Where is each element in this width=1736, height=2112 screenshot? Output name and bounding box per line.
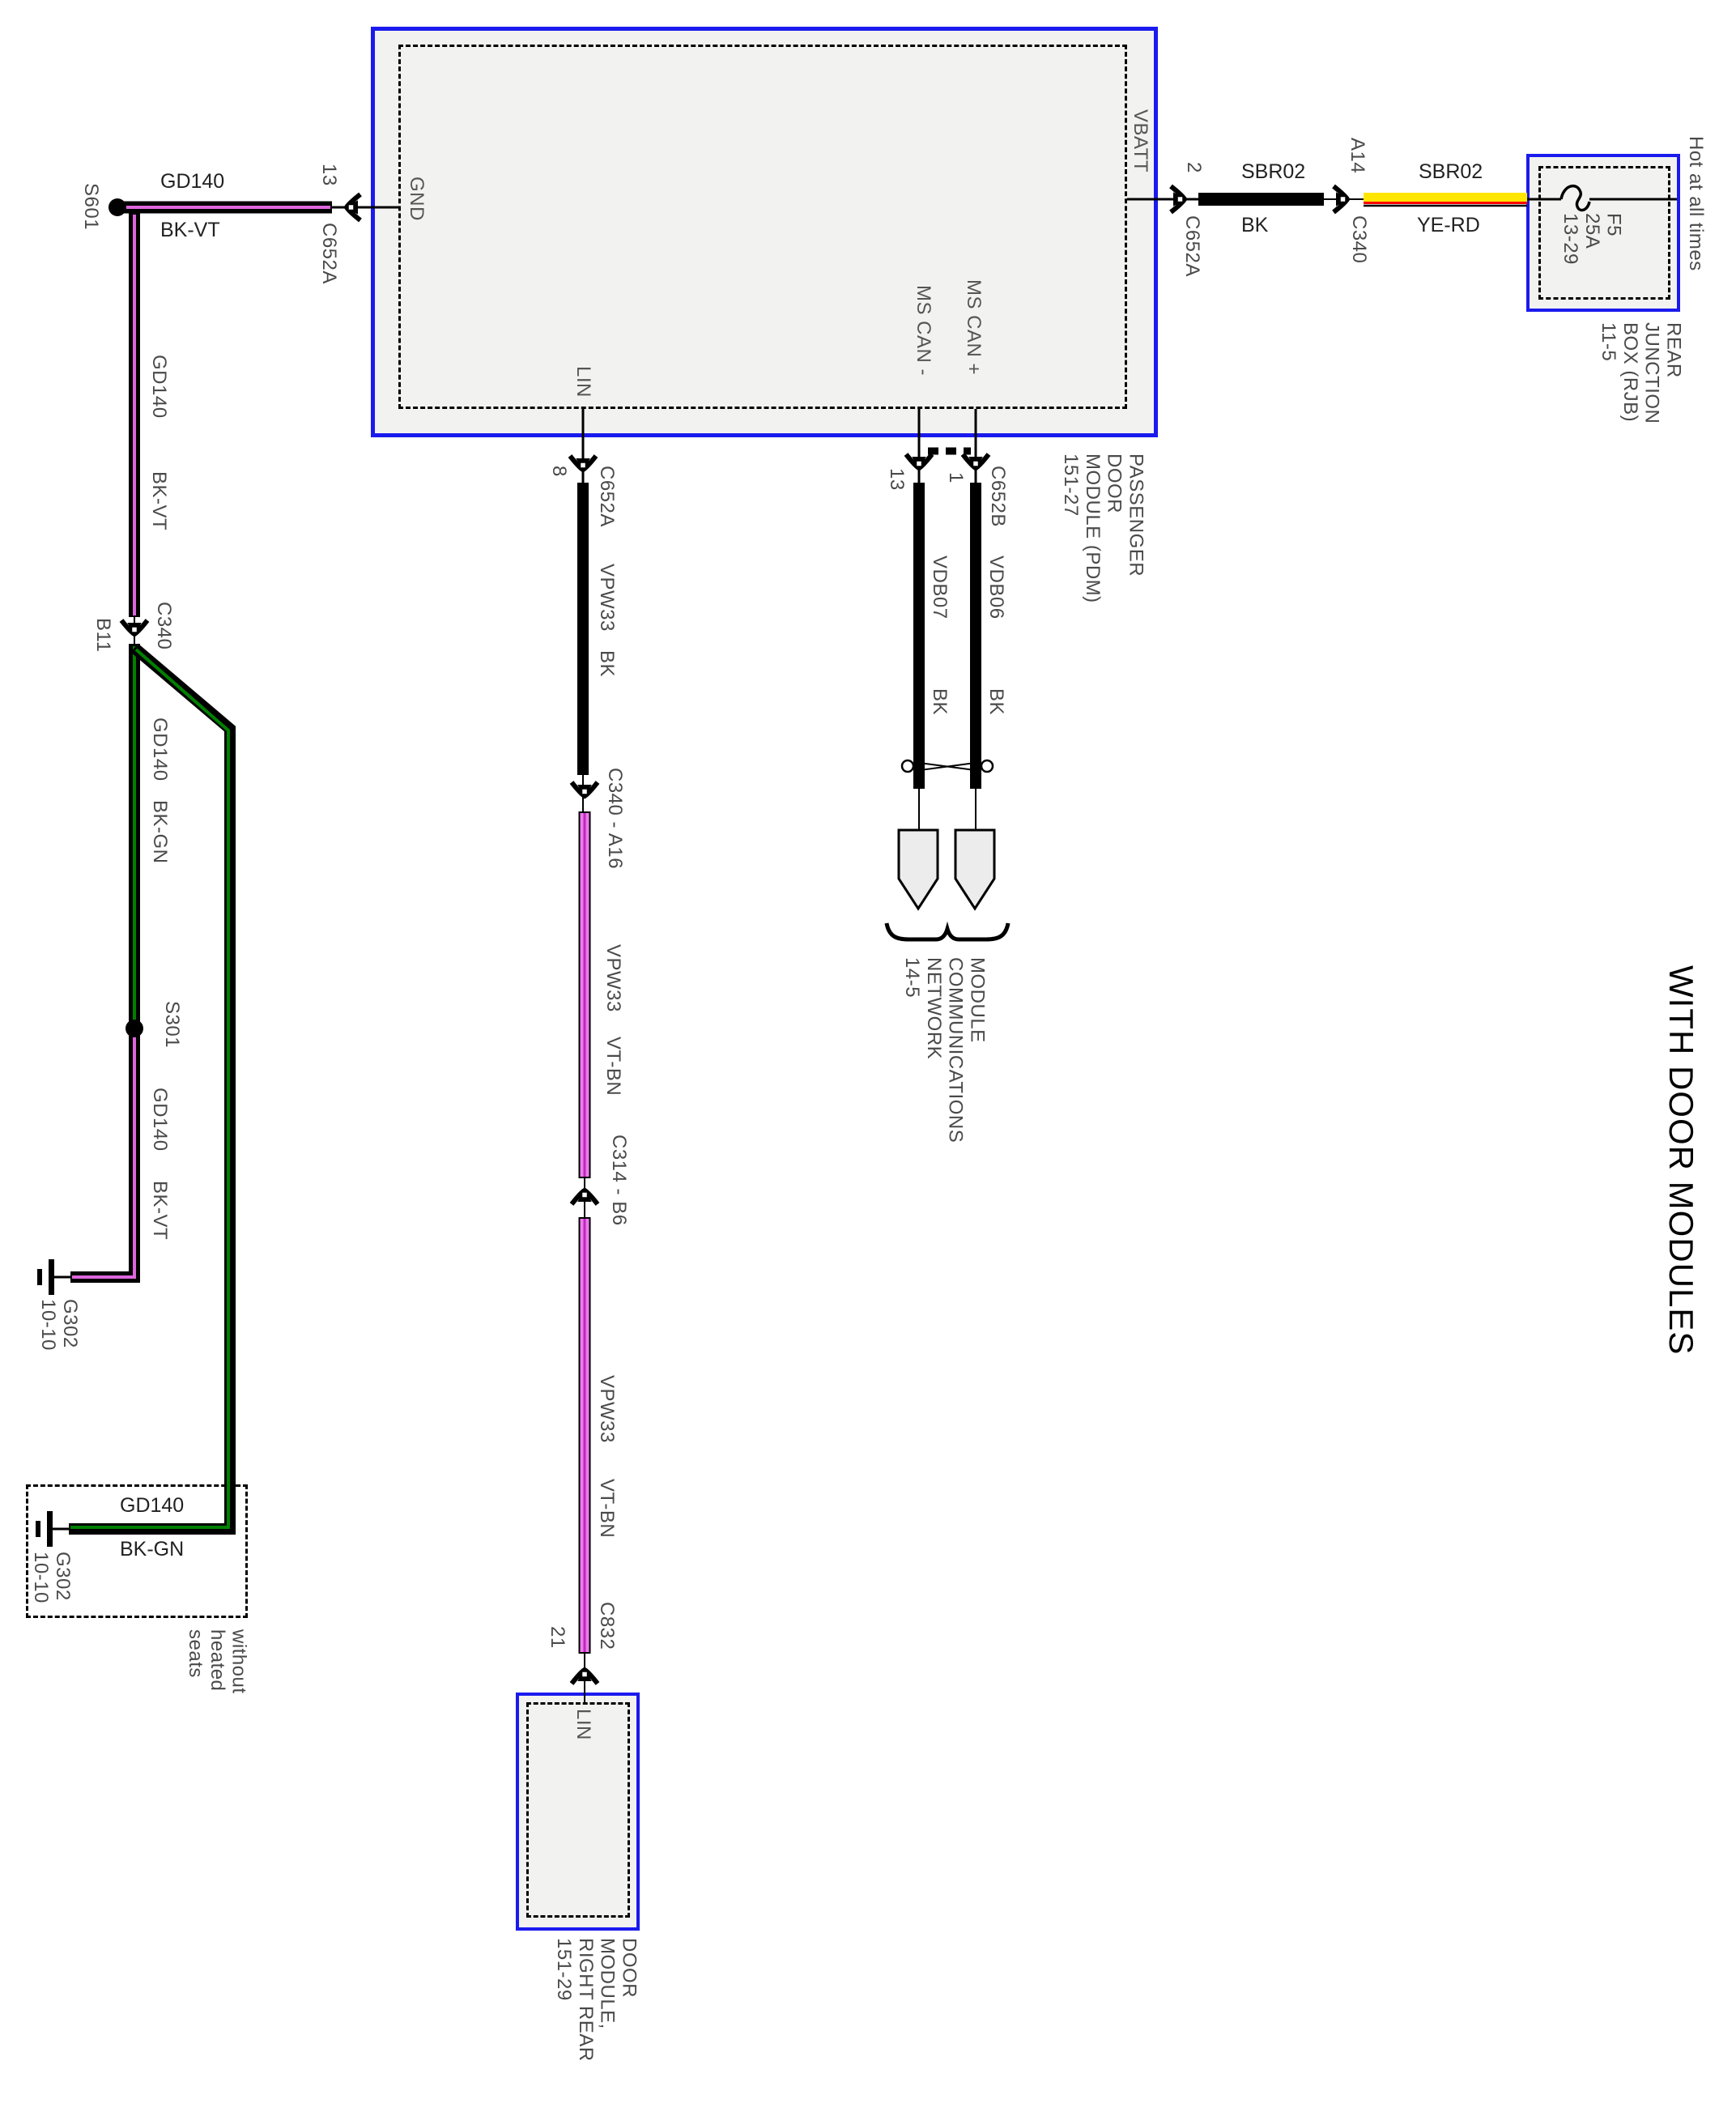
splice-s301-label: S301 xyxy=(160,1001,182,1048)
ground-g302-lower-label: G302 10-10 xyxy=(29,1552,73,1603)
network-label: MODULE COMMUNICATIONS NETWORK 14-5 xyxy=(900,957,988,1143)
pin-a14-label: A14 xyxy=(1346,138,1368,173)
wire-can-minus-color: BK xyxy=(928,688,950,715)
wiring-svg xyxy=(0,0,1736,2112)
pdm-pin-ms-can-plus: MS CAN + xyxy=(962,279,984,375)
wire-sbr02-yerd xyxy=(1364,198,1527,206)
pin-13-mscan-label: 13 xyxy=(885,468,907,491)
wire-heated-box-circuit: GD140 xyxy=(120,1494,184,1518)
pdm-label: PASSENGER DOOR MODULE (PDM) 151-27 xyxy=(1059,453,1147,603)
connector-c652a-vbatt-label: C652A xyxy=(1181,215,1202,277)
wire-lin-mid-circuit: VPW33 xyxy=(602,944,623,1012)
splice-s601-dot xyxy=(108,198,126,216)
wire-lin-upper-circuit: VPW33 xyxy=(595,564,617,632)
splice-s601-label: S601 xyxy=(79,183,101,230)
pin-21-label: 21 xyxy=(546,1626,568,1649)
door-rr-label: DOOR MODULE, RIGHT REAR 151-29 xyxy=(552,1938,640,2062)
connector-c652b-label: C652B xyxy=(986,466,1008,527)
door-rr-pin-lin: LIN xyxy=(572,1709,594,1740)
wire-lin-lower-circuit: VPW33 xyxy=(595,1375,617,1443)
connector-c832-label: C832 xyxy=(595,1602,617,1650)
wire-sbr02-yerd-circuit: SBR02 xyxy=(1419,160,1483,184)
ground-symbol-lower xyxy=(36,1511,69,1547)
wire-left-mid-circuit: GD140 xyxy=(148,717,170,781)
pdm-pin-ms-can-minus: MS CAN - xyxy=(912,285,934,376)
wire-sbr02-bk-circuit: SBR02 xyxy=(1241,160,1305,184)
wire-can-plus-circuit: VDB06 xyxy=(985,556,1006,620)
wiring-diagram-page: WITH DOOR MODULES S601 GD140 BK-VT 13 C6… xyxy=(0,0,1736,2112)
splice-s301-dot xyxy=(126,1020,143,1037)
pin-b11-label: B11 xyxy=(91,618,113,652)
page-title: WITH DOOR MODULES xyxy=(1662,965,1700,1355)
wire-gnd-top-circuit: GD140 xyxy=(160,170,224,194)
wire-can-plus-color: BK xyxy=(985,688,1006,715)
pdm-pin-gnd: GND xyxy=(405,177,427,221)
rjb-label: REAR JUNCTION BOX (RJB) 11-5 xyxy=(1597,322,1684,424)
wire-heated-box-color: BK-GN xyxy=(120,1538,184,1561)
ground-g302-upper-label: G302 10-10 xyxy=(36,1299,80,1351)
wire-sbr02-yerd-color: YE-RD xyxy=(1417,214,1480,237)
without-heated-seats-note: without heated seats xyxy=(184,1629,249,1694)
wire-lin-upper-color: BK xyxy=(595,650,617,677)
wire-left-upper-color: BK-VT xyxy=(147,471,169,530)
pin-2-label: 2 xyxy=(1182,162,1204,173)
network-connector-pentagon-left xyxy=(899,830,938,909)
connector-arrow-c340-a16 xyxy=(572,782,598,796)
connector-c652a-lin-label: C652A xyxy=(595,466,617,527)
connector-c340-a16-label: C340 - A16 xyxy=(603,768,625,869)
wire-left-upper-circuit: GD140 xyxy=(147,355,169,419)
network-connector-pentagon-right xyxy=(955,830,994,909)
wire-lin-mid-color: VT-BN xyxy=(602,1037,623,1096)
pdm-pin-lin: LIN xyxy=(572,366,594,398)
pin-13-label: 13 xyxy=(317,164,339,186)
wire-left-lower xyxy=(70,1028,134,1277)
wire-sbr02-bk-color: BK xyxy=(1241,214,1268,237)
hot-at-all-times-note: Hot at all times xyxy=(1684,136,1706,271)
connector-c340-a14-label: C340 xyxy=(1347,215,1369,263)
pin-8-label: 8 xyxy=(547,466,569,477)
connector-c652a-gnd-label: C652A xyxy=(317,223,339,284)
wire-left-lower-circuit: GD140 xyxy=(148,1088,170,1152)
ground-symbol-upper xyxy=(37,1259,70,1295)
wire-can-minus-circuit: VDB07 xyxy=(928,556,950,620)
connector-c340-b11-label: C340 xyxy=(152,602,174,649)
fuse-f5-label: F5 25A 13-29 xyxy=(1559,213,1624,265)
pdm-pin-vbatt: VBATT xyxy=(1129,109,1151,172)
fuse-f5 xyxy=(1527,186,1677,211)
brace-icon xyxy=(887,923,1008,939)
connector-c314-b6-label: C314 - B6 xyxy=(607,1135,629,1226)
wire-lin-lower-color: VT-BN xyxy=(595,1479,617,1538)
wire-left-mid-color: BK-GN xyxy=(148,800,170,864)
wire-gnd-top-color: BK-VT xyxy=(160,219,220,242)
wire-left-lower-color: BK-VT xyxy=(148,1181,170,1240)
pin-1-mscan-label: 1 xyxy=(944,472,966,483)
